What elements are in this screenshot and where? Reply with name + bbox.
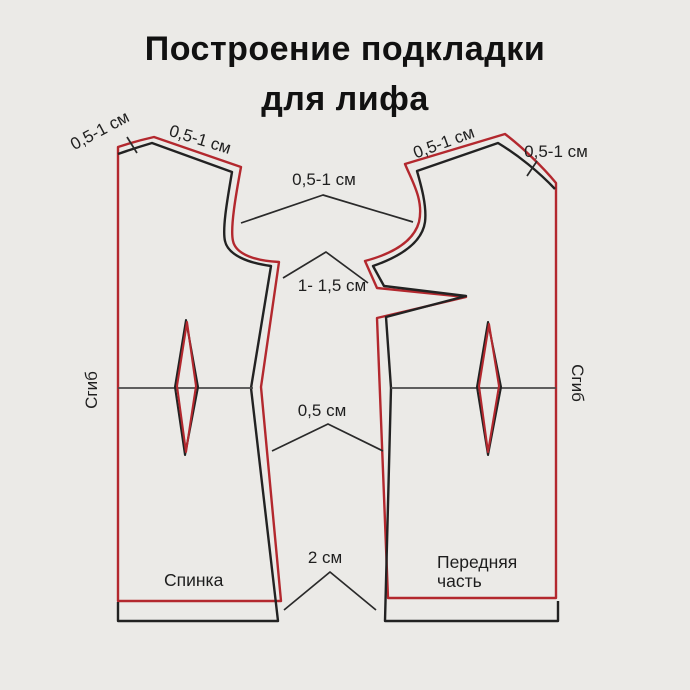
front-neck-measurement: 0,5-1 см bbox=[524, 142, 588, 162]
back-piece-label: Спинка bbox=[164, 570, 223, 591]
back-lining-outline bbox=[118, 137, 281, 601]
side-seam-measurement: 0,5 см bbox=[298, 401, 347, 421]
front-piece-label: Передняя часть bbox=[437, 553, 537, 591]
sewing-pattern-diagram: Построение подкладки для лифа bbox=[0, 0, 690, 690]
front-lining-outline bbox=[365, 134, 556, 598]
armhole-measurement: 0,5-1 см bbox=[292, 170, 356, 190]
armhole-pointer-lines bbox=[241, 195, 413, 223]
side-seam-pointer-lines bbox=[272, 424, 383, 451]
front-pattern-outline bbox=[373, 143, 558, 621]
hem-measurement: 2 см bbox=[308, 548, 342, 568]
fold-label-left: Сгиб bbox=[82, 371, 102, 409]
hem-pointer-lines bbox=[284, 572, 376, 610]
pattern-drawing bbox=[0, 0, 690, 690]
armhole-depth-measurement: 1- 1,5 см bbox=[298, 276, 366, 296]
fold-label-right: Сгиб bbox=[567, 364, 587, 402]
